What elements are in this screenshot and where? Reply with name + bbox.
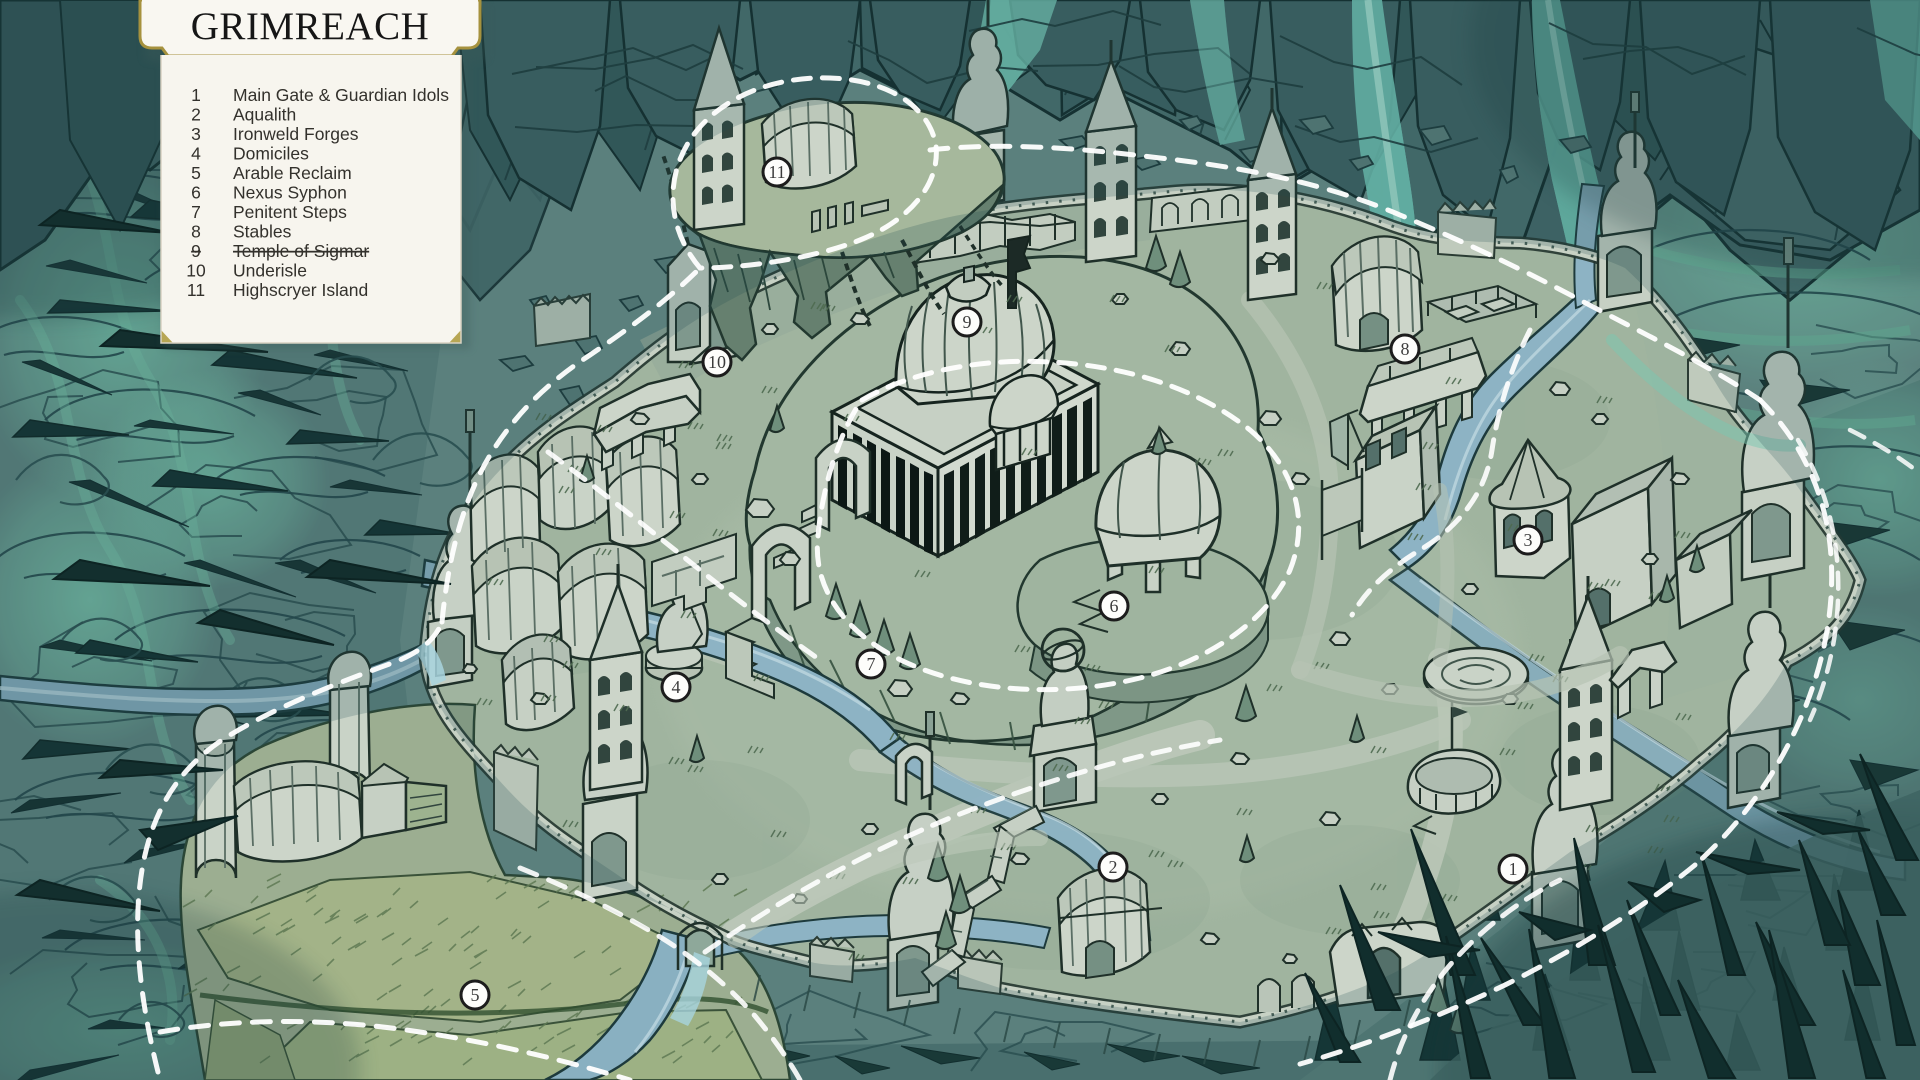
svg-text:10: 10 [186,261,206,281]
svg-text:GRIMREACH: GRIMREACH [191,5,430,48]
svg-text:2: 2 [191,105,201,125]
svg-text:Highscryer Island: Highscryer Island [233,280,368,300]
svg-text:Main Gate & Guardian Idols: Main Gate & Guardian Idols [233,85,449,105]
svg-text:9: 9 [963,312,972,332]
svg-text:Aqualith: Aqualith [233,105,296,125]
svg-text:1: 1 [1509,859,1518,879]
svg-text:10: 10 [708,352,726,372]
svg-text:8: 8 [191,222,201,242]
svg-text:3: 3 [1524,530,1533,550]
svg-text:2: 2 [1109,857,1118,877]
svg-text:3: 3 [191,124,201,144]
svg-text:11: 11 [187,280,205,300]
svg-text:4: 4 [191,144,201,164]
svg-text:6: 6 [1110,596,1119,616]
svg-text:7: 7 [191,202,201,222]
svg-text:Ironweld Forges: Ironweld Forges [233,124,359,144]
svg-text:Domiciles: Domiciles [233,144,309,164]
svg-text:7: 7 [867,654,876,674]
svg-text:8: 8 [1401,339,1410,359]
svg-text:5: 5 [471,985,480,1005]
svg-text:Penitent Steps: Penitent Steps [233,202,347,222]
svg-text:Temple of Sigmar: Temple of Sigmar [233,241,369,261]
svg-text:6: 6 [191,183,201,203]
svg-text:Stables: Stables [233,222,292,242]
svg-text:Arable Reclaim: Arable Reclaim [233,163,352,183]
svg-text:1: 1 [191,85,201,105]
svg-text:11: 11 [768,162,785,182]
svg-text:9: 9 [191,241,201,261]
svg-text:Nexus Syphon: Nexus Syphon [233,183,347,203]
svg-text:4: 4 [672,677,681,697]
svg-text:Underisle: Underisle [233,261,307,281]
svg-text:5: 5 [191,163,201,183]
